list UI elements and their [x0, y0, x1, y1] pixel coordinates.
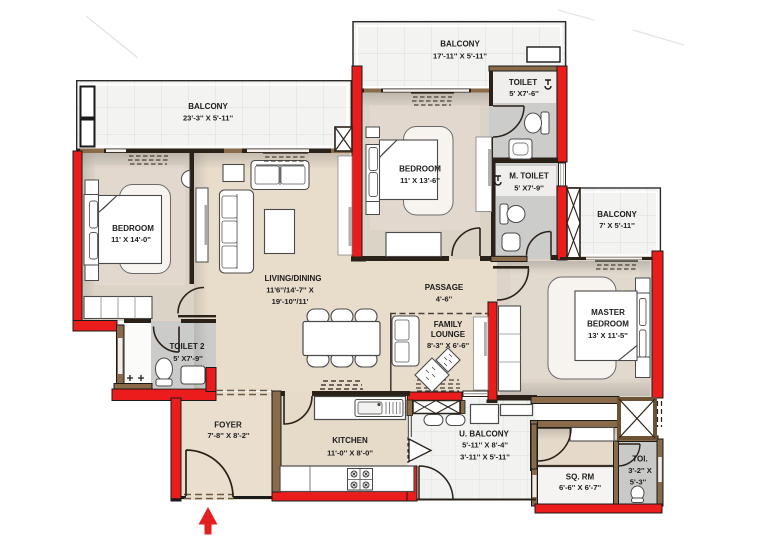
svg-text:8'-3'' X 6'-6'': 8'-3'' X 6'-6''	[427, 341, 469, 350]
svg-text:5'-11'' X 8'-4'': 5'-11'' X 8'-4''	[462, 441, 508, 450]
svg-text:19'-10''/11': 19'-10''/11'	[272, 297, 309, 306]
svg-text:5' X7'-9'': 5' X7'-9''	[514, 184, 544, 193]
svg-text:4'-6'': 4'-6''	[436, 295, 453, 304]
svg-text:BALCONY: BALCONY	[597, 210, 637, 219]
svg-text:7' X 5'-11'': 7' X 5'-11''	[599, 221, 635, 230]
svg-text:BEDROOM: BEDROOM	[587, 320, 629, 329]
svg-text:17'-11'' X 5'-11'': 17'-11'' X 5'-11''	[433, 52, 487, 61]
svg-text:5' X7'-9'': 5' X7'-9''	[173, 354, 203, 363]
svg-text:LIVING/DINING: LIVING/DINING	[265, 274, 322, 283]
svg-text:BALCONY: BALCONY	[440, 40, 480, 49]
svg-text:13' X 11'-5'': 13' X 11'-5''	[588, 331, 628, 340]
svg-text:BEDROOM: BEDROOM	[112, 224, 154, 233]
svg-text:6'-6'' X 6'-7'': 6'-6'' X 6'-7''	[559, 483, 601, 492]
svg-text:BEDROOM: BEDROOM	[399, 165, 441, 174]
svg-text:11'6''/14'-7'' X: 11'6''/14'-7'' X	[266, 286, 314, 295]
svg-text:3'-11'' X 5'-11'': 3'-11'' X 5'-11''	[460, 453, 510, 462]
svg-text:5' X7'-6'': 5' X7'-6''	[509, 89, 539, 98]
svg-text:PASSAGE: PASSAGE	[425, 283, 464, 292]
svg-text:FOYER: FOYER	[214, 421, 242, 430]
svg-text:5'-3'': 5'-3''	[630, 478, 647, 487]
svg-text:SQ. RM: SQ. RM	[566, 473, 595, 482]
svg-text:7'-8'' X 8'-2'': 7'-8'' X 8'-2''	[207, 431, 249, 440]
svg-text:KITCHEN: KITCHEN	[332, 436, 368, 445]
svg-text:3'-2'' X: 3'-2'' X	[628, 466, 652, 475]
svg-text:U. BALCONY: U. BALCONY	[459, 430, 509, 439]
svg-text:TOILET 2: TOILET 2	[170, 342, 206, 351]
svg-text:MASTER: MASTER	[591, 308, 625, 317]
svg-text:FAMILY: FAMILY	[434, 320, 463, 329]
svg-text:BALCONY: BALCONY	[188, 102, 228, 111]
svg-text:M. TOILET: M. TOILET	[509, 172, 549, 181]
svg-text:TOI.: TOI.	[632, 455, 647, 464]
svg-text:TOILET: TOILET	[509, 78, 537, 87]
svg-text:11'-0'' X 8'-0'': 11'-0'' X 8'-0''	[327, 449, 373, 458]
svg-text:LOUNGE: LOUNGE	[431, 330, 466, 339]
svg-text:11' X 14'-0'': 11' X 14'-0''	[111, 235, 151, 244]
svg-text:11' X 13'-6'': 11' X 13'-6''	[400, 176, 440, 185]
svg-text:23'-3'' X 5'-11'': 23'-3'' X 5'-11''	[183, 114, 233, 123]
